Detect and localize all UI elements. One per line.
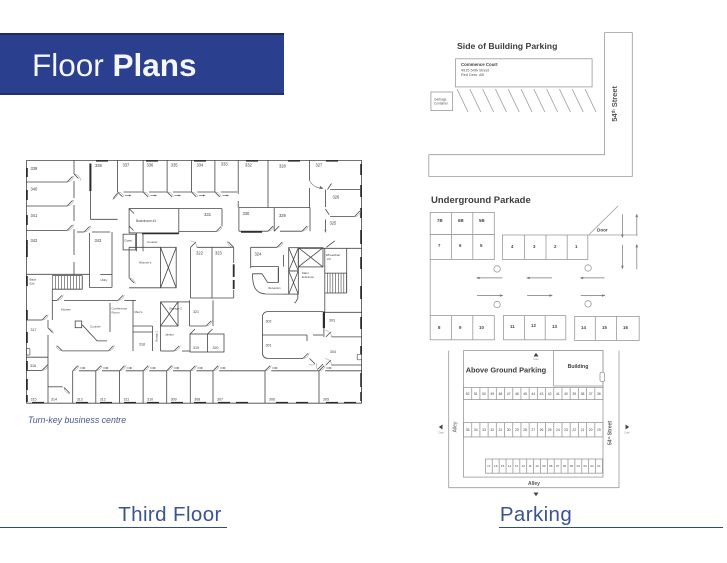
svg-text:17: 17 — [487, 464, 491, 468]
svg-text:52: 52 — [466, 392, 470, 396]
svg-text:Men's: Men's — [135, 310, 143, 314]
svg-text:323: 323 — [215, 251, 223, 256]
svg-text:10: 10 — [535, 464, 539, 468]
svg-text:Underground Parkade: Underground Parkade — [431, 195, 531, 206]
svg-text:303: 303 — [329, 319, 335, 323]
svg-text:54th Street: 54th Street — [607, 421, 613, 445]
svg-text:4915 54th Street: 4915 54th Street — [461, 69, 490, 73]
svg-text:333: 333 — [221, 162, 229, 167]
svg-text:Counter: Counter — [90, 325, 101, 329]
svg-text:13: 13 — [552, 324, 557, 329]
svg-text:4: 4 — [511, 244, 514, 249]
svg-text:48: 48 — [499, 392, 503, 396]
svg-text:Janitor: Janitor — [165, 333, 174, 337]
svg-text:10: 10 — [479, 325, 484, 330]
svg-text:36: 36 — [597, 392, 601, 396]
svg-text:8: 8 — [438, 325, 441, 330]
svg-text:Commence Court: Commence Court — [461, 62, 498, 67]
svg-text:Reception: Reception — [268, 286, 281, 290]
svg-text:321: 321 — [193, 310, 199, 314]
svg-text:335: 335 — [171, 163, 179, 168]
svg-text:7: 7 — [438, 243, 441, 248]
svg-text:04: 04 — [577, 464, 581, 468]
svg-text:26: 26 — [540, 428, 544, 432]
svg-text:332: 332 — [245, 163, 253, 168]
svg-text:2: 2 — [554, 244, 557, 249]
svg-text:05: 05 — [570, 464, 574, 468]
svg-text:35: 35 — [466, 428, 470, 432]
svg-text:Lift: Lift — [327, 257, 331, 261]
svg-text:330: 330 — [243, 211, 251, 216]
svg-text:Boardroom #1: Boardroom #1 — [136, 219, 156, 223]
svg-text:Alley: Alley — [453, 421, 459, 432]
svg-text:316: 316 — [30, 364, 36, 368]
svg-text:339: 339 — [31, 166, 39, 171]
svg-text:Alley: Alley — [528, 481, 540, 487]
svg-text:06: 06 — [563, 464, 567, 468]
svg-text:14: 14 — [581, 325, 586, 330]
svg-text:45: 45 — [523, 392, 527, 396]
svg-text:305: 305 — [323, 398, 329, 402]
svg-text:Kitchen: Kitchen — [61, 308, 71, 312]
svg-text:315: 315 — [31, 398, 37, 402]
svg-text:25: 25 — [548, 428, 552, 432]
svg-text:314: 314 — [51, 398, 57, 402]
svg-text:14: 14 — [508, 464, 512, 468]
svg-text:6: 6 — [459, 243, 462, 248]
svg-text:43: 43 — [540, 392, 544, 396]
svg-text:15: 15 — [602, 325, 607, 330]
svg-text:12: 12 — [522, 464, 526, 468]
svg-text:23: 23 — [564, 428, 568, 432]
svg-text:11: 11 — [510, 324, 515, 329]
svg-text:13: 13 — [515, 464, 519, 468]
svg-text:Utility: Utility — [101, 278, 108, 282]
svg-text:02: 02 — [590, 464, 594, 468]
svg-text:Side of Building Parking: Side of Building Parking — [457, 41, 557, 51]
svg-text:41: 41 — [556, 392, 560, 396]
svg-text:3: 3 — [533, 244, 536, 249]
svg-text:331: 331 — [204, 212, 212, 217]
svg-text:5B: 5B — [479, 218, 485, 223]
svg-text:Door: Door — [597, 228, 608, 233]
svg-text:Storage 1: Storage 1 — [156, 331, 159, 342]
svg-text:341: 341 — [31, 213, 39, 218]
svg-text:328: 328 — [279, 164, 287, 169]
svg-text:343: 343 — [95, 238, 103, 243]
svg-text:Counter: Counter — [147, 240, 158, 244]
svg-text:322: 322 — [196, 251, 204, 256]
svg-text:342: 342 — [31, 238, 39, 243]
svg-text:27: 27 — [531, 428, 535, 432]
svg-text:310: 310 — [147, 398, 153, 402]
svg-text:5: 5 — [480, 243, 483, 248]
svg-text:29: 29 — [515, 428, 519, 432]
svg-text:9: 9 — [459, 325, 462, 330]
svg-text:301: 301 — [266, 344, 272, 348]
svg-text:Cars: Cars — [533, 357, 539, 361]
svg-text:302: 302 — [266, 320, 272, 324]
svg-text:6B: 6B — [458, 218, 464, 223]
svg-text:Closet: Closet — [124, 239, 132, 243]
svg-text:324: 324 — [255, 252, 263, 257]
svg-text:312: 312 — [100, 398, 106, 402]
svg-text:16: 16 — [623, 325, 628, 330]
svg-text:Women's: Women's — [139, 261, 152, 265]
svg-text:20: 20 — [589, 428, 593, 432]
svg-text:31: 31 — [499, 428, 503, 432]
svg-text:33: 33 — [482, 428, 486, 432]
svg-text:12: 12 — [531, 323, 536, 328]
svg-text:317: 317 — [31, 328, 37, 332]
svg-text:07: 07 — [556, 464, 560, 468]
svg-text:Cars: Cars — [624, 431, 630, 435]
svg-text:326: 326 — [333, 195, 341, 200]
svg-text:03: 03 — [584, 464, 588, 468]
svg-text:329: 329 — [279, 213, 287, 218]
svg-text:7B: 7B — [437, 218, 443, 223]
svg-text:16: 16 — [494, 464, 498, 468]
svg-text:320: 320 — [213, 346, 219, 350]
svg-text:19: 19 — [597, 428, 601, 432]
svg-text:08: 08 — [549, 464, 553, 468]
svg-text:336: 336 — [147, 163, 155, 168]
svg-text:Storage 2: Storage 2 — [169, 307, 182, 311]
svg-text:47: 47 — [507, 392, 511, 396]
svg-text:44: 44 — [531, 392, 535, 396]
svg-text:Red Deer, AB: Red Deer, AB — [461, 73, 484, 77]
svg-text:311: 311 — [124, 398, 130, 402]
svg-text:46: 46 — [515, 392, 519, 396]
svg-text:304: 304 — [330, 350, 336, 354]
svg-text:Building: Building — [568, 364, 589, 370]
svg-text:313: 313 — [77, 398, 83, 402]
svg-text:337: 337 — [123, 163, 131, 168]
svg-text:1: 1 — [575, 244, 578, 249]
svg-text:319: 319 — [193, 346, 199, 350]
svg-text:Entrance: Entrance — [302, 275, 314, 279]
svg-text:11: 11 — [529, 464, 532, 468]
svg-text:01: 01 — [597, 464, 601, 468]
svg-text:38: 38 — [581, 392, 585, 396]
svg-text:Above Ground Parking: Above Ground Parking — [466, 366, 547, 375]
svg-text:327: 327 — [316, 163, 324, 168]
svg-text:42: 42 — [548, 392, 552, 396]
svg-text:09: 09 — [542, 464, 546, 468]
svg-text:34: 34 — [474, 428, 478, 432]
svg-text:21: 21 — [581, 428, 585, 432]
svg-text:Room: Room — [112, 311, 121, 315]
svg-text:37: 37 — [589, 392, 593, 396]
svg-text:39: 39 — [572, 392, 576, 396]
svg-text:309: 309 — [171, 398, 177, 402]
svg-text:32: 32 — [490, 428, 494, 432]
svg-text:24: 24 — [556, 428, 560, 432]
svg-text:22: 22 — [572, 428, 576, 432]
svg-text:338: 338 — [95, 163, 103, 168]
svg-text:51: 51 — [474, 392, 478, 396]
svg-text:30: 30 — [507, 428, 511, 432]
svg-text:340: 340 — [31, 187, 39, 192]
svg-text:54th Street: 54th Street — [610, 85, 619, 121]
svg-text:306: 306 — [269, 398, 275, 402]
svg-text:318: 318 — [139, 343, 145, 347]
svg-text:Cars: Cars — [438, 431, 444, 435]
svg-text:Container: Container — [434, 102, 449, 106]
svg-text:49: 49 — [490, 392, 494, 396]
svg-text:28: 28 — [523, 428, 527, 432]
svg-text:50: 50 — [482, 392, 486, 396]
svg-text:40: 40 — [564, 392, 568, 396]
svg-text:Exit: Exit — [30, 282, 35, 286]
svg-text:307: 307 — [217, 398, 223, 402]
svg-text:15: 15 — [501, 464, 505, 468]
svg-text:325: 325 — [330, 221, 338, 226]
svg-text:334: 334 — [197, 163, 205, 168]
svg-text:308: 308 — [194, 398, 200, 402]
